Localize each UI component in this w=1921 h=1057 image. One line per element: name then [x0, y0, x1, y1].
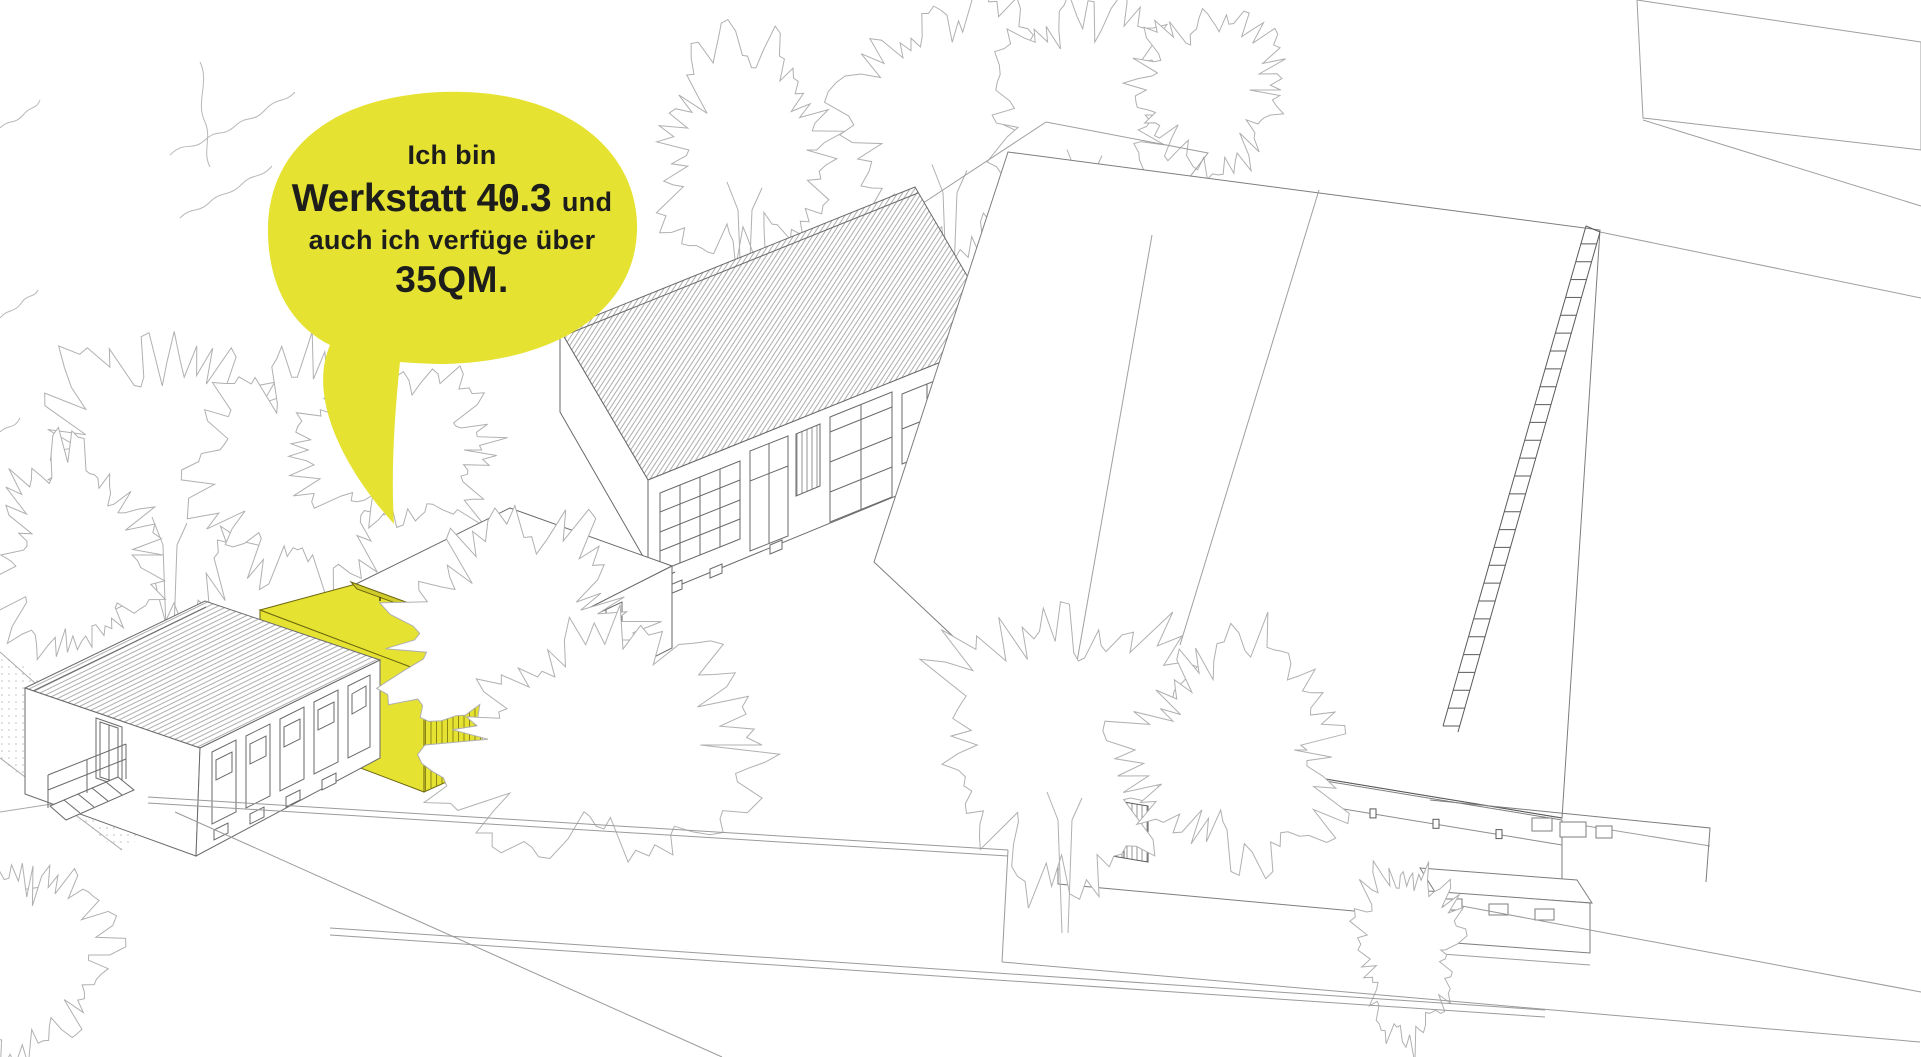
tree-outline	[1123, 9, 1286, 180]
annex-window	[1535, 909, 1554, 920]
pipe-clamp	[1496, 830, 1502, 839]
contour-squiggle	[0, 100, 40, 128]
tree-outline	[1350, 861, 1467, 1057]
contour-squiggle	[180, 166, 272, 218]
neighbour-roofs	[1562, 0, 1921, 846]
pipe-clamp	[1370, 809, 1376, 818]
tree-outline	[0, 855, 126, 1057]
far-roof-plane	[1637, 0, 1921, 150]
illustration-page: Ich bin Werkstatt 40.3 und auch ich verf…	[0, 0, 1921, 1057]
workshop-door	[750, 436, 788, 551]
annex-window	[1489, 904, 1508, 915]
site-axonometric-drawing	[0, 0, 1921, 1057]
contour-squiggle	[0, 290, 38, 318]
contour-squiggle	[0, 418, 20, 432]
contour-squiggle	[200, 62, 210, 167]
contour-squiggle	[170, 92, 295, 155]
pipe-clamp	[1433, 819, 1439, 828]
slatted-window	[796, 424, 820, 496]
